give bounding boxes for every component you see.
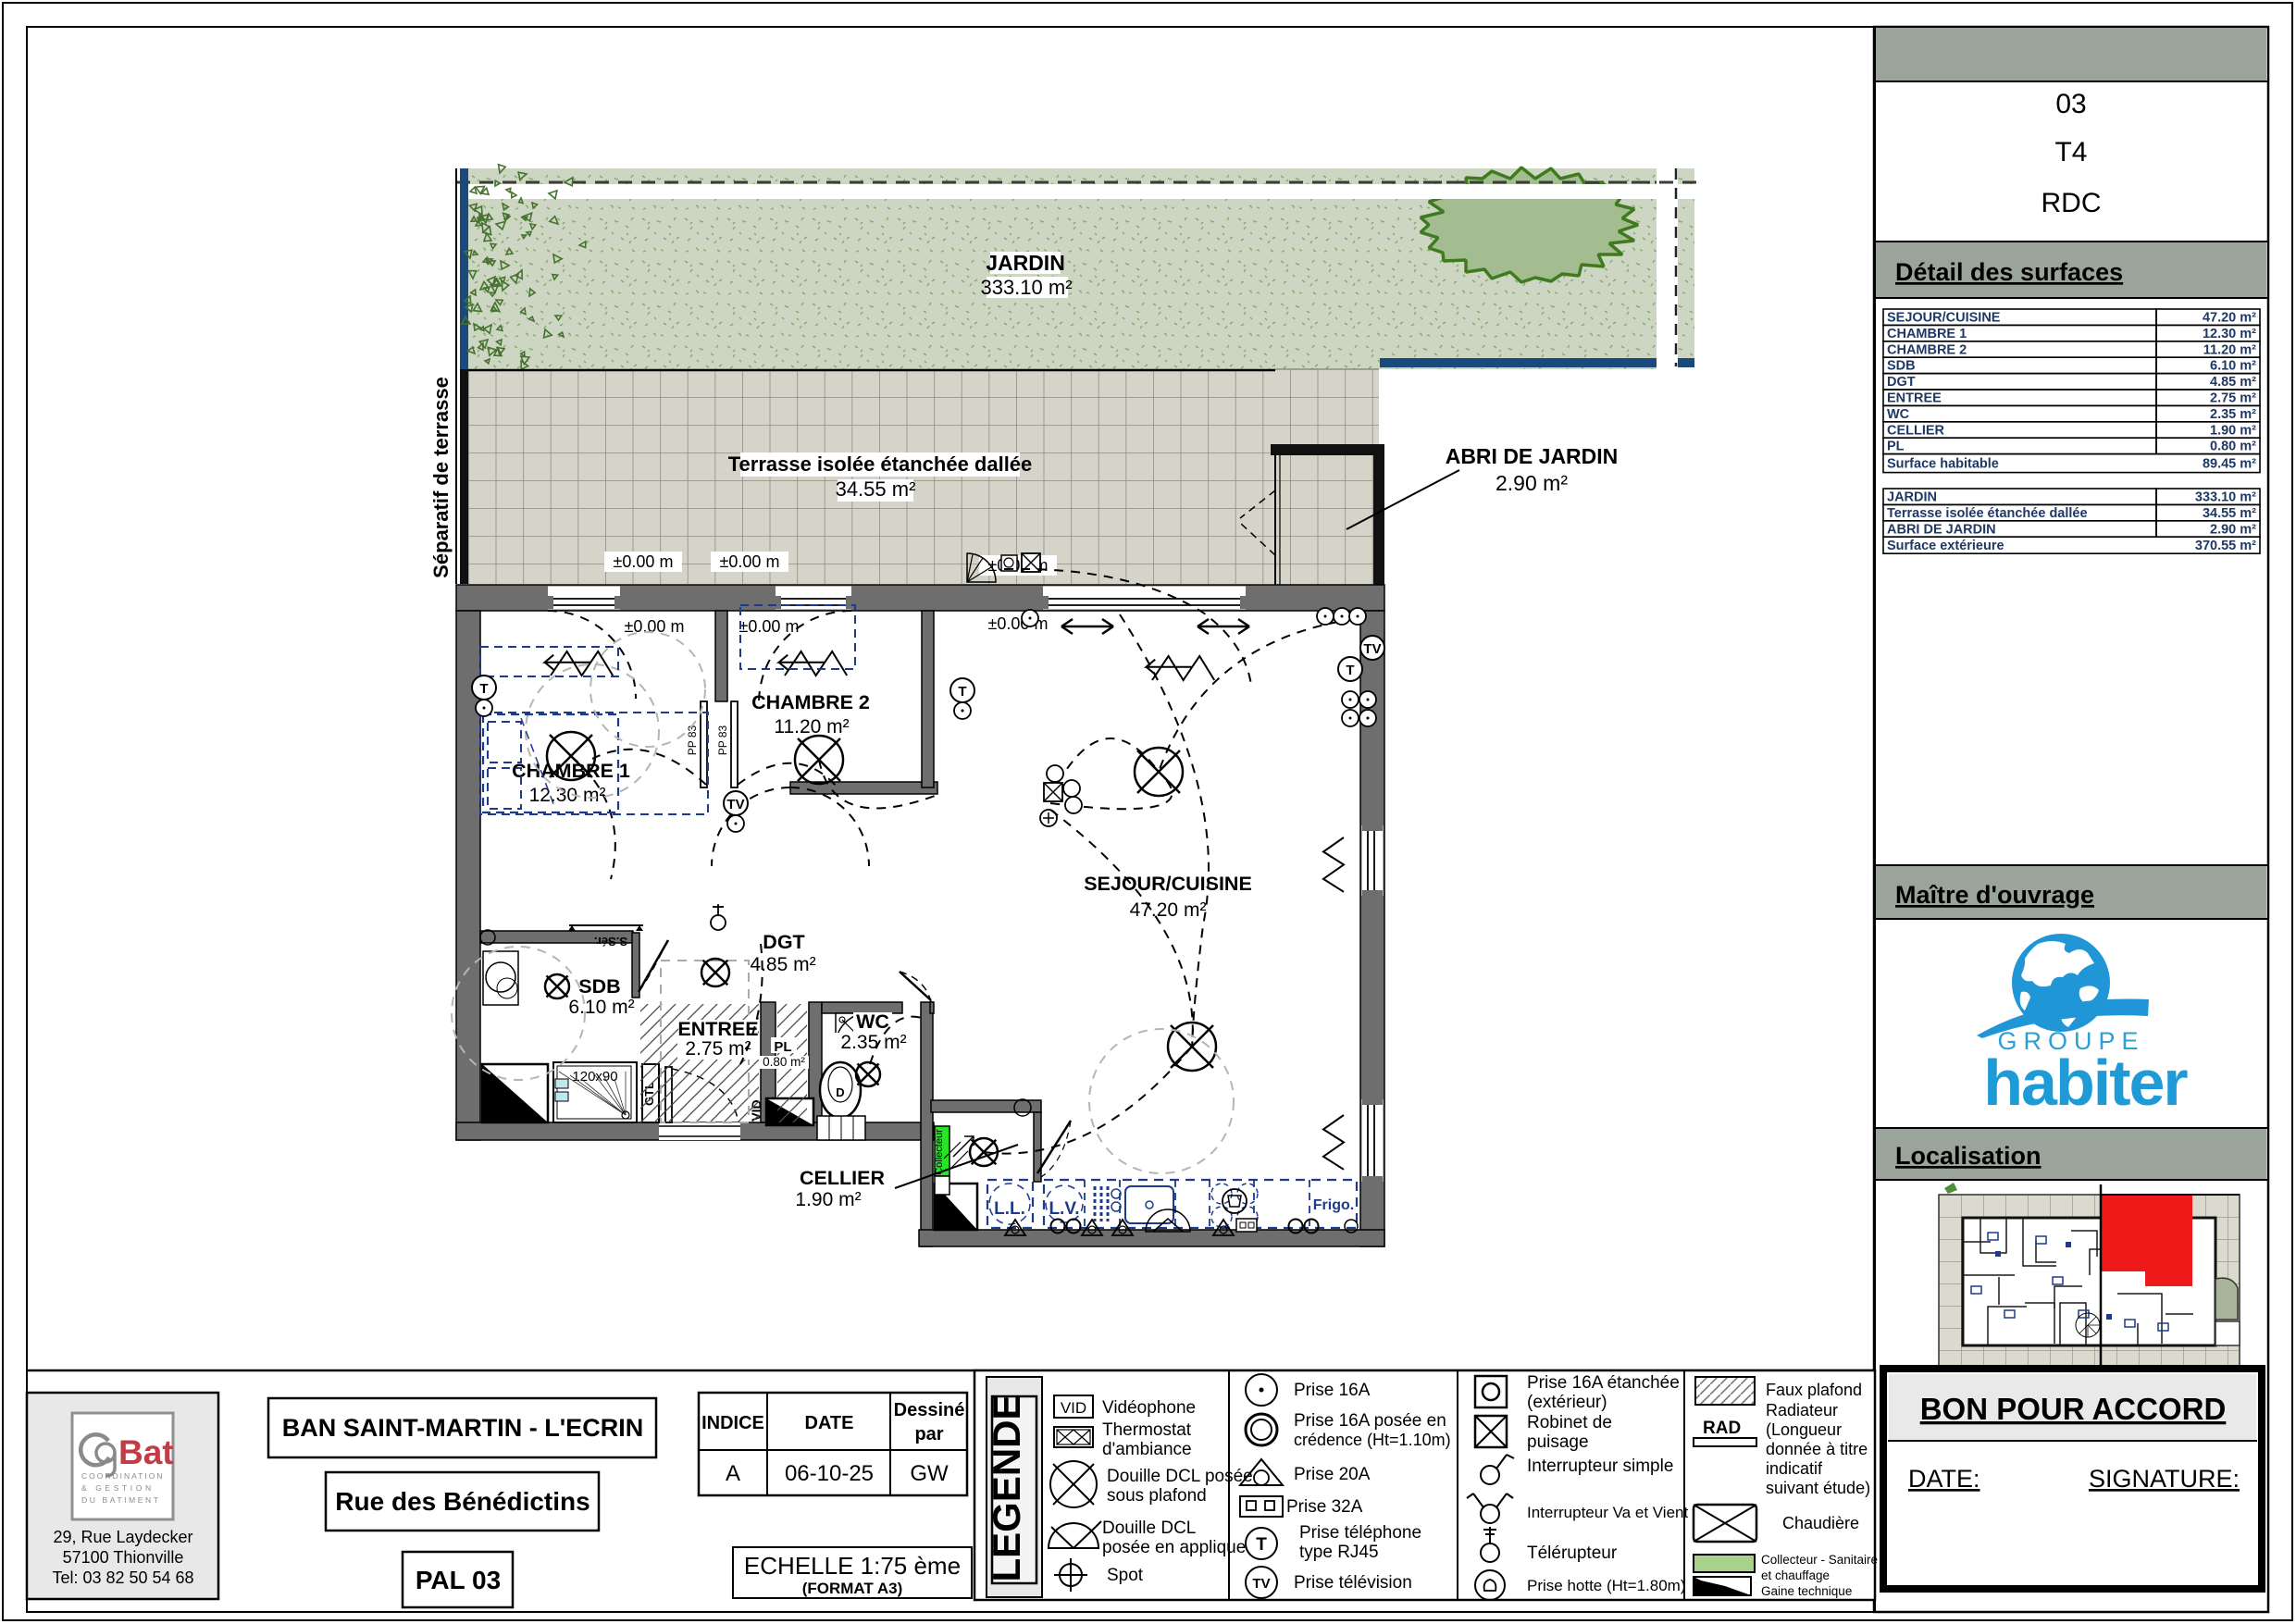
svg-text:RAD: RAD — [1703, 1419, 1741, 1438]
svg-text:par: par — [914, 1424, 943, 1444]
svg-text:RDC: RDC — [2042, 188, 2102, 218]
svg-text:2.35 m²: 2.35 m² — [840, 1032, 906, 1053]
svg-text:DATE:: DATE: — [1908, 1465, 1980, 1493]
svg-text:SEJOUR/CUISINE: SEJOUR/CUISINE — [1084, 873, 1252, 895]
svg-text:333.10 m²: 333.10 m² — [980, 276, 1072, 299]
svg-text:COORDINATION: COORDINATION — [81, 1471, 164, 1481]
svg-text:(extérieur): (extérieur) — [1527, 1393, 1607, 1412]
svg-text:Maître d'ouvrage: Maître d'ouvrage — [1895, 881, 2094, 909]
svg-text:T: T — [1346, 663, 1354, 678]
svg-text:370.55 m²: 370.55 m² — [2195, 539, 2256, 553]
svg-text:indicatif: indicatif — [1766, 1459, 1823, 1478]
svg-text:Robinet de: Robinet de — [1527, 1413, 1612, 1432]
svg-text:DGT: DGT — [1887, 375, 1916, 390]
svg-text:VID: VID — [1061, 1399, 1086, 1417]
svg-text:Prise 16A: Prise 16A — [1294, 1381, 1371, 1400]
svg-text:T4: T4 — [2054, 137, 2087, 167]
svg-text:Prise 16A étanchée: Prise 16A étanchée — [1527, 1373, 1680, 1393]
svg-text:Prise téléphone: Prise téléphone — [1299, 1523, 1421, 1543]
svg-text:11.20 m²: 11.20 m² — [774, 716, 849, 738]
svg-text:0.80 m²: 0.80 m² — [2210, 440, 2256, 454]
svg-text:ENTREE: ENTREE — [1887, 391, 1942, 406]
svg-text:A: A — [726, 1461, 740, 1486]
svg-text:crédence (Ht=1.10m): crédence (Ht=1.10m) — [1294, 1431, 1451, 1449]
svg-text:ECHELLE 1:75 ème: ECHELLE 1:75 ème — [744, 1552, 961, 1580]
svg-text:Radiateur: Radiateur — [1766, 1401, 1838, 1419]
svg-text:type RJ45: type RJ45 — [1299, 1543, 1379, 1562]
svg-text:Prise 16A posée en: Prise 16A posée en — [1294, 1411, 1446, 1431]
svg-text:Rue des Bénédictins: Rue des Bénédictins — [335, 1487, 590, 1516]
svg-text:PL: PL — [1887, 440, 1905, 454]
svg-text:1.90 m²: 1.90 m² — [2210, 423, 2256, 438]
svg-text:89.45 m²: 89.45 m² — [2203, 457, 2256, 472]
svg-text:INDICE: INDICE — [701, 1413, 764, 1433]
svg-text:6.10 m²: 6.10 m² — [2210, 359, 2256, 374]
svg-text:T: T — [958, 684, 966, 700]
svg-text:T: T — [479, 681, 488, 697]
svg-text:PP 83: PP 83 — [716, 725, 729, 755]
svg-text:Prise télévision: Prise télévision — [1294, 1573, 1412, 1593]
svg-text:2.90 m²: 2.90 m² — [1496, 471, 1568, 495]
svg-text:donnée à titre: donnée à titre — [1766, 1440, 1868, 1458]
svg-text:Localisation: Localisation — [1895, 1142, 2042, 1170]
svg-text:0.80 m²: 0.80 m² — [763, 1055, 805, 1069]
svg-text:(Longueur: (Longueur — [1766, 1420, 1842, 1439]
svg-text:PL: PL — [774, 1039, 791, 1055]
svg-text:CELLIER: CELLIER — [800, 1167, 885, 1189]
svg-text:Prise hotte (Ht=1.80m): Prise hotte (Ht=1.80m) — [1527, 1577, 1686, 1594]
svg-text:±0.00 m: ±0.00 m — [739, 617, 800, 636]
svg-text:2.75 m²: 2.75 m² — [2210, 391, 2256, 406]
svg-text:±0.00 m: ±0.00 m — [614, 552, 674, 571]
svg-text:CHAMBRE 2: CHAMBRE 2 — [751, 691, 870, 713]
svg-text:S.Sér.: S.Sér. — [594, 935, 627, 948]
svg-text:ABRI DE JARDIN: ABRI DE JARDIN — [1446, 444, 1619, 468]
svg-text:CHAMBRE 1: CHAMBRE 1 — [512, 760, 630, 782]
svg-text:SDB: SDB — [578, 975, 620, 998]
svg-text:suivant étude): suivant étude) — [1766, 1479, 1870, 1497]
svg-text:2.35 m²: 2.35 m² — [2210, 407, 2256, 422]
svg-text:Collecteur: Collecteur — [934, 1129, 945, 1175]
svg-text:Thermostat: Thermostat — [1102, 1420, 1192, 1440]
svg-text:DGT: DGT — [763, 931, 804, 953]
svg-text:Bat: Bat — [118, 1433, 174, 1471]
svg-text:SDB: SDB — [1887, 359, 1916, 374]
svg-text:posée en applique: posée en applique — [1102, 1538, 1246, 1557]
svg-text:WC: WC — [856, 1010, 889, 1033]
svg-text:DU BATIMENT: DU BATIMENT — [81, 1495, 161, 1505]
svg-text:Interrupteur Va et Vient: Interrupteur Va et Vient — [1527, 1504, 1688, 1521]
svg-text:PAL 03: PAL 03 — [416, 1566, 501, 1594]
svg-text:6.10 m²: 6.10 m² — [568, 997, 634, 1018]
svg-text:Prise 32A: Prise 32A — [1286, 1497, 1363, 1517]
svg-text:Douille DCL posée: Douille DCL posée — [1107, 1467, 1253, 1486]
svg-text:SIGNATURE:: SIGNATURE: — [2089, 1465, 2240, 1493]
svg-text:puisage: puisage — [1527, 1432, 1589, 1452]
svg-text:habiter: habiter — [1983, 1047, 2188, 1119]
svg-text:4.85 m²: 4.85 m² — [750, 954, 815, 975]
svg-text:Interrupteur simple: Interrupteur simple — [1527, 1457, 1673, 1476]
svg-text:Collecteur - Sanitaire: Collecteur - Sanitaire — [1761, 1553, 1878, 1567]
svg-text:29, Rue Laydecker: 29, Rue Laydecker — [53, 1528, 192, 1546]
svg-text:Terrasse isolée étanchée dallé: Terrasse isolée étanchée dallée — [728, 452, 1033, 476]
svg-text:& GESTION: & GESTION — [81, 1483, 155, 1493]
svg-text:333.10 m²: 333.10 m² — [2195, 490, 2256, 505]
svg-text:BAN SAINT-MARTIN - L'ECRIN: BAN SAINT-MARTIN - L'ECRIN — [282, 1414, 643, 1442]
svg-text:WC: WC — [1887, 407, 1910, 422]
svg-text:(FORMAT A3): (FORMAT A3) — [802, 1580, 903, 1597]
svg-text:L.V.: L.V. — [1049, 1199, 1079, 1219]
svg-text:06-10-25: 06-10-25 — [785, 1461, 874, 1486]
svg-text:47.20 m²: 47.20 m² — [2203, 311, 2256, 326]
svg-text:d'ambiance: d'ambiance — [1102, 1440, 1192, 1459]
svg-text:LEGENDE: LEGENDE — [985, 1394, 1028, 1581]
svg-text:CELLIER: CELLIER — [1887, 423, 1945, 438]
svg-text:Vidéophone: Vidéophone — [1102, 1398, 1196, 1418]
svg-text:Télérupteur: Télérupteur — [1527, 1543, 1618, 1563]
svg-text:SEJOUR/CUISINE: SEJOUR/CUISINE — [1887, 311, 2001, 326]
svg-text:Spot: Spot — [1107, 1566, 1144, 1585]
svg-text:ABRI DE JARDIN: ABRI DE JARDIN — [1887, 522, 1996, 537]
svg-text:JARDIN: JARDIN — [986, 251, 1065, 275]
svg-text:D: D — [836, 1085, 844, 1099]
svg-text:±0.00 m: ±0.00 m — [720, 552, 780, 571]
svg-text:JARDIN: JARDIN — [1887, 490, 1937, 505]
svg-text:TV: TV — [1363, 641, 1381, 657]
svg-text:Gaine technique: Gaine technique — [1761, 1584, 1852, 1598]
svg-text:GW: GW — [910, 1461, 949, 1486]
svg-text:34.55 m²: 34.55 m² — [2203, 506, 2256, 521]
svg-text:4.85 m²: 4.85 m² — [2210, 375, 2256, 390]
svg-text:TV: TV — [726, 797, 744, 812]
svg-text:CHAMBRE 2: CHAMBRE 2 — [1887, 342, 1967, 357]
svg-text:Douille DCL: Douille DCL — [1102, 1519, 1196, 1538]
svg-text:TV: TV — [1252, 1576, 1270, 1592]
svg-text:12.30 m²: 12.30 m² — [529, 785, 606, 806]
svg-text:et chauffage: et chauffage — [1761, 1568, 1830, 1582]
svg-text:T: T — [1256, 1535, 1267, 1555]
svg-text:Faux plafond: Faux plafond — [1766, 1381, 1862, 1399]
svg-text:1.90 m²: 1.90 m² — [795, 1189, 861, 1210]
svg-text:sous plafond: sous plafond — [1107, 1486, 1207, 1506]
svg-text:DATE: DATE — [805, 1413, 854, 1433]
svg-text:PP 83: PP 83 — [686, 725, 699, 755]
svg-text:11.20 m²: 11.20 m² — [2203, 342, 2256, 357]
svg-text:ENTREE: ENTREE — [677, 1018, 758, 1040]
svg-text:47.20 m²: 47.20 m² — [1130, 899, 1207, 921]
svg-text:03: 03 — [2055, 89, 2086, 119]
svg-text:Prise 20A: Prise 20A — [1294, 1465, 1371, 1484]
svg-text:L.L.: L.L. — [994, 1199, 1025, 1219]
svg-text:57100 Thionville: 57100 Thionville — [63, 1548, 184, 1567]
svg-text:2.75 m²: 2.75 m² — [685, 1038, 751, 1060]
svg-text:Séparatif de terrasse: Séparatif de terrasse — [429, 377, 453, 578]
svg-text:34.55 m²: 34.55 m² — [836, 477, 916, 501]
svg-text:Terrasse isolée étanchée dallé: Terrasse isolée étanchée dallée — [1887, 506, 2088, 521]
svg-text:12.30 m²: 12.30 m² — [2203, 327, 2256, 341]
svg-text:Détail des surfaces: Détail des surfaces — [1895, 258, 2123, 286]
svg-text:Surface habitable: Surface habitable — [1887, 457, 1999, 472]
svg-text:CHAMBRE 1: CHAMBRE 1 — [1887, 327, 1967, 341]
svg-text:Frigo.: Frigo. — [1313, 1197, 1354, 1213]
svg-text:BON POUR ACCORD: BON POUR ACCORD — [1920, 1392, 2227, 1426]
svg-text:Surface extérieure: Surface extérieure — [1887, 539, 2004, 553]
svg-text:Tel: 03 82 50 54 68: Tel: 03 82 50 54 68 — [52, 1568, 193, 1587]
svg-text:Chaudière: Chaudière — [1782, 1514, 1859, 1532]
svg-text:2.90 m²: 2.90 m² — [2210, 522, 2256, 537]
svg-text:Dessiné: Dessiné — [894, 1400, 965, 1420]
